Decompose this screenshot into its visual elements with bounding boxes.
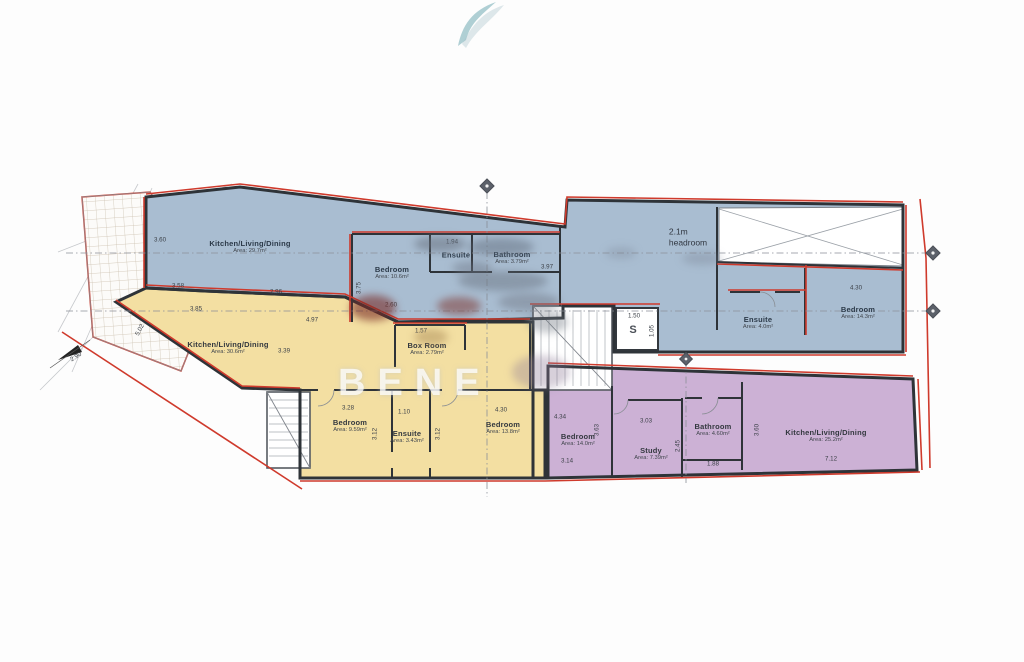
dim-study-height: 2.45 [675, 440, 682, 452]
watermark-smudge [414, 329, 448, 345]
lift-shaft-symbol: S [629, 324, 636, 336]
watermark-smudge [414, 236, 466, 252]
watermark-smudge [512, 355, 570, 389]
dim-shaft-depth: 1.05 [649, 325, 656, 337]
room-label-yellow-ensuite: Ensuite Area: 3.43m² [390, 429, 424, 445]
dim-blue-bedroom-right-width: 4.30 [850, 285, 862, 292]
brand-logo-icon [458, 2, 504, 48]
room-label-blue-bedroom-left: Bedroom Area: 10.6m² [375, 265, 409, 281]
room-label-yellow-bedroom-one: Bedroom Area: 9.59m² [333, 418, 367, 434]
room-label-yellow-kitchen-living-dining: Kitchen/Living/Dining Area: 30.6m² [187, 340, 268, 356]
dim-purple-bedroom-base: 3.14 [561, 458, 573, 465]
dim-blue-kld-width-a: 3.58 [172, 283, 184, 290]
dim-yellow-kld-width-c: 3.39 [278, 348, 290, 355]
room-label-purple-bathroom: Bathroom Area: 4.60m² [694, 422, 731, 438]
dim-yellow-bedroom-one-width: 3.28 [342, 405, 354, 412]
room-label-blue-ensuite-right: Ensuite Area: 4.0m² [743, 315, 773, 331]
room-label-purple-kitchen-living-dining: Kitchen/Living/Dining Area: 25.2m² [785, 428, 866, 444]
floorplan-page: Kitchen/Living/Dining Area: 29.7m² Bedro… [0, 0, 1024, 662]
watermark-smudge [468, 238, 534, 256]
dim-purple-kld-width: 7.12 [825, 456, 837, 463]
dim-yellow-bedroom-two-height: 3.12 [435, 428, 442, 440]
watermark-smudge [498, 293, 560, 311]
dim-blue-mid-width: 3.97 [541, 264, 553, 271]
room-label-blue-bedroom-right: Bedroom Area: 14.3m² [841, 305, 875, 321]
dim-purple-bedroom-width: 4.34 [554, 414, 566, 421]
watermark-smudge [350, 295, 396, 321]
benchmark-icon [50, 340, 90, 368]
dim-blue-kld-width-b: 2.96 [270, 289, 282, 296]
floorplan-canvas [0, 0, 1024, 662]
dim-blue-kld-height: 3.60 [154, 237, 166, 244]
dim-yellow-bedroom-one-height: 3.12 [372, 428, 379, 440]
left-stairwell [267, 392, 310, 468]
dim-yellow-ensuite-width: 1.10 [398, 409, 410, 416]
room-label-blue-kitchen-living-dining: Kitchen/Living/Dining Area: 29.7m² [209, 239, 290, 255]
watermark-smudge [606, 247, 636, 259]
dim-shaft-width: 1.50 [628, 313, 640, 320]
room-label-blue-ensuite-left: Ensuite [442, 251, 471, 260]
room-label-purple-bedroom: Bedroom Area: 14.0m² [561, 432, 595, 448]
watermark-smudge [458, 271, 548, 291]
watermark-text: BENE [338, 362, 492, 405]
dim-purple-bedroom-height: 3.63 [594, 424, 601, 436]
watermark-smudge [682, 252, 722, 265]
dim-yellow-bedroom-two-width: 4.30 [495, 407, 507, 414]
watermark-smudge [528, 311, 568, 333]
dim-bathroom-width: 1.88 [707, 461, 719, 468]
dim-purple-kld-height: 3.60 [754, 424, 761, 436]
headroom-annotation: 2.1m headroom [669, 226, 707, 247]
dim-yellow-kld-width-a: 3.85 [190, 306, 202, 313]
dim-blue-bedroom-height: 3.75 [356, 282, 363, 294]
low-headroom-hatch [719, 207, 903, 266]
room-label-study: Study Area: 7.39m² [634, 446, 668, 462]
watermark-smudge [437, 297, 481, 315]
dim-yellow-kld-width-b: 4.97 [306, 317, 318, 324]
dim-study-width: 3.03 [640, 418, 652, 425]
room-label-yellow-bedroom-two: Bedroom Area: 13.8m² [486, 420, 520, 436]
